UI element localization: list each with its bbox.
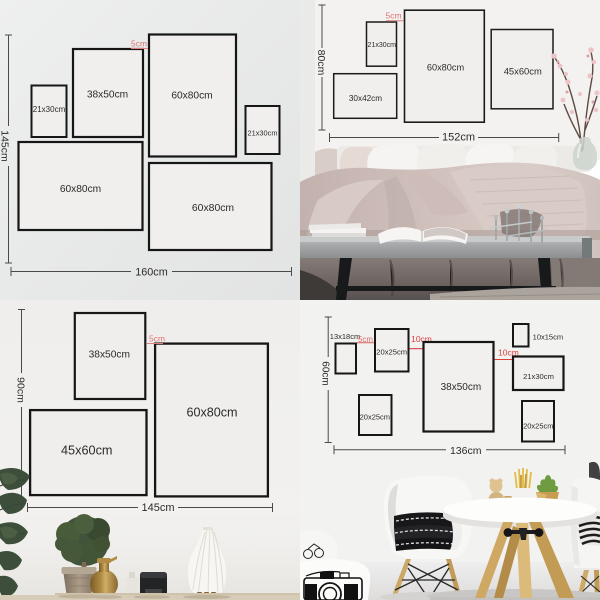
svg-text:5cm: 5cm bbox=[149, 334, 165, 344]
svg-text:5cm: 5cm bbox=[385, 11, 401, 21]
svg-text:145cm: 145cm bbox=[141, 502, 174, 514]
svg-text:10x15cm: 10x15cm bbox=[533, 333, 563, 342]
svg-text:21x30cm: 21x30cm bbox=[33, 105, 66, 114]
svg-text:160cm: 160cm bbox=[135, 267, 167, 279]
svg-text:45x60cm: 45x60cm bbox=[504, 66, 542, 77]
svg-text:136cm: 136cm bbox=[450, 445, 482, 457]
svg-text:60cm: 60cm bbox=[320, 361, 331, 385]
svg-text:60x80cm: 60x80cm bbox=[192, 203, 234, 214]
svg-text:38x50cm: 38x50cm bbox=[441, 382, 482, 393]
svg-text:152cm: 152cm bbox=[442, 132, 475, 144]
svg-text:60x80cm: 60x80cm bbox=[427, 63, 465, 73]
svg-text:21x30cm: 21x30cm bbox=[523, 372, 554, 381]
svg-text:20x25cm: 20x25cm bbox=[360, 413, 390, 422]
svg-text:20x25cm: 20x25cm bbox=[376, 348, 407, 357]
svg-text:5cm: 5cm bbox=[131, 39, 147, 49]
svg-text:145cm: 145cm bbox=[0, 130, 11, 162]
svg-text:38x50cm: 38x50cm bbox=[87, 90, 128, 101]
svg-text:45x60cm: 45x60cm bbox=[61, 444, 112, 458]
svg-text:60x80cm: 60x80cm bbox=[171, 91, 212, 102]
svg-text:21x30cm: 21x30cm bbox=[368, 42, 397, 49]
svg-text:13x18cm: 13x18cm bbox=[330, 332, 360, 341]
svg-text:80cm: 80cm bbox=[315, 50, 327, 76]
svg-text:21x30cm: 21x30cm bbox=[248, 129, 278, 138]
svg-text:20x25cm: 20x25cm bbox=[523, 422, 553, 431]
svg-text:90cm: 90cm bbox=[15, 377, 27, 403]
svg-text:60x80cm: 60x80cm bbox=[60, 184, 101, 195]
svg-text:38x50cm: 38x50cm bbox=[89, 350, 130, 361]
svg-text:30x42cm: 30x42cm bbox=[349, 94, 382, 103]
svg-text:60x80cm: 60x80cm bbox=[186, 406, 237, 420]
